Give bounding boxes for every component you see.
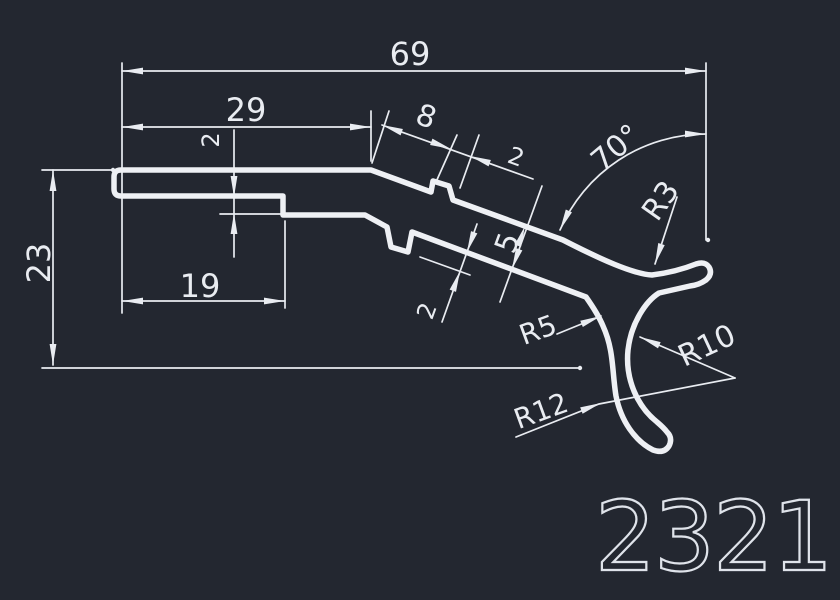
dim-overall-height-label: 23 (20, 243, 58, 284)
cad-drawing-viewport: 69 29 2 8 2 70° R3 23 19 5 2 R5 R10 R12 … (0, 0, 840, 600)
dim-lower-length-label: 19 (180, 267, 221, 305)
dim-upper-length-label: 29 (226, 91, 267, 129)
dim-overall-width-label: 69 (390, 35, 431, 73)
dim-step-label: 2 (197, 132, 225, 147)
ext-endpoint-dot (706, 238, 710, 242)
ext-endpoint-dot (578, 366, 582, 370)
part-number: 2321 (595, 481, 831, 593)
